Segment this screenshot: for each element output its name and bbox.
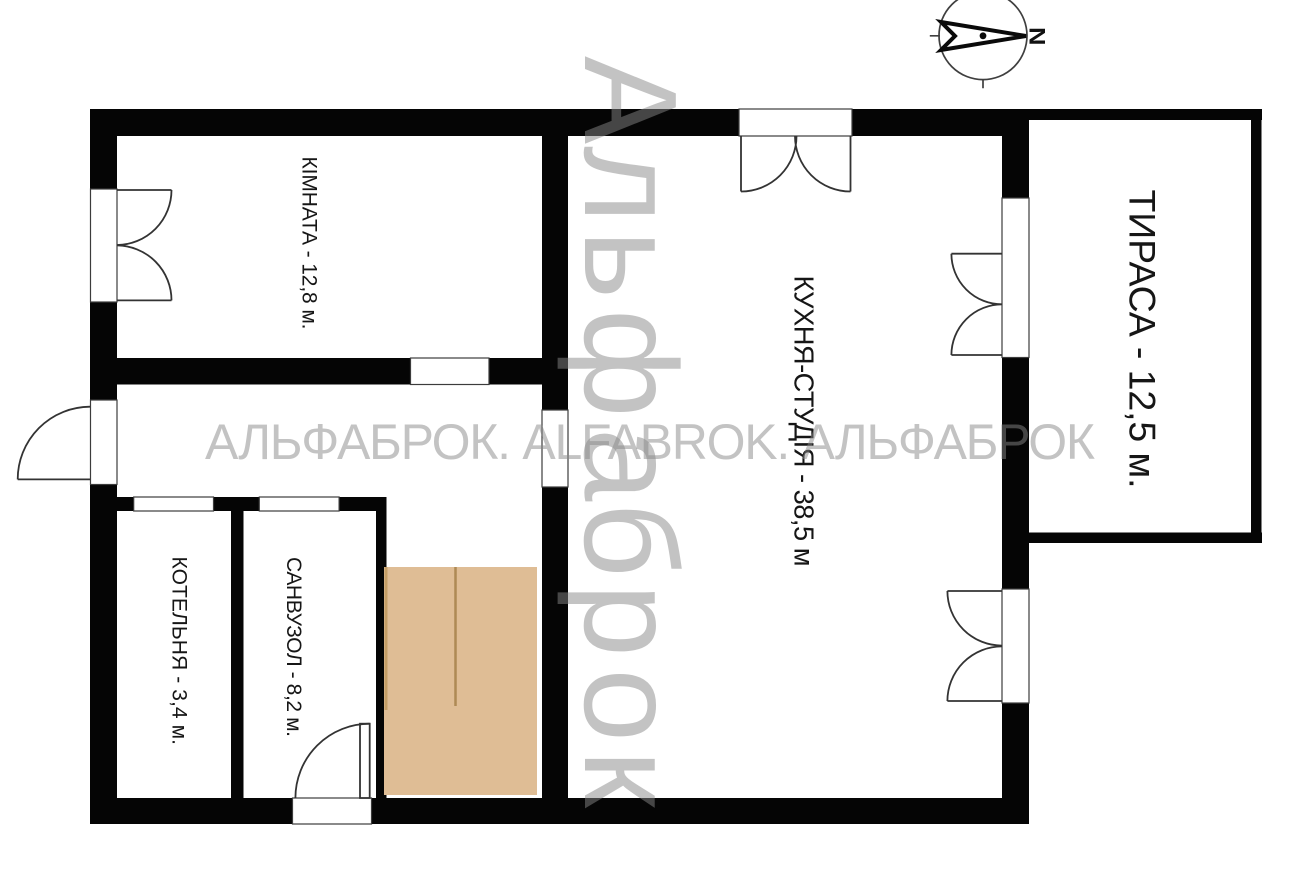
svg-text:КІМНАТА - 12,8 м.: КІМНАТА - 12,8 м.: [297, 157, 320, 330]
svg-text:САНВУЗОЛ - 8,2 м.: САНВУЗОЛ - 8,2 м.: [282, 557, 305, 737]
svg-text:КОТЕЛЬНЯ - 3,4 м.: КОТЕЛЬНЯ - 3,4 м.: [167, 557, 190, 746]
svg-text:АЛЬФАБРОК. ALFABROK. АЛЬФАБРОК: АЛЬФАБРОК. ALFABROK. АЛЬФАБРОК: [205, 414, 1095, 470]
svg-text:ТИРАСА - 12,5 м.: ТИРАСА - 12,5 м.: [1122, 190, 1164, 489]
svg-text:N: N: [1025, 27, 1050, 46]
